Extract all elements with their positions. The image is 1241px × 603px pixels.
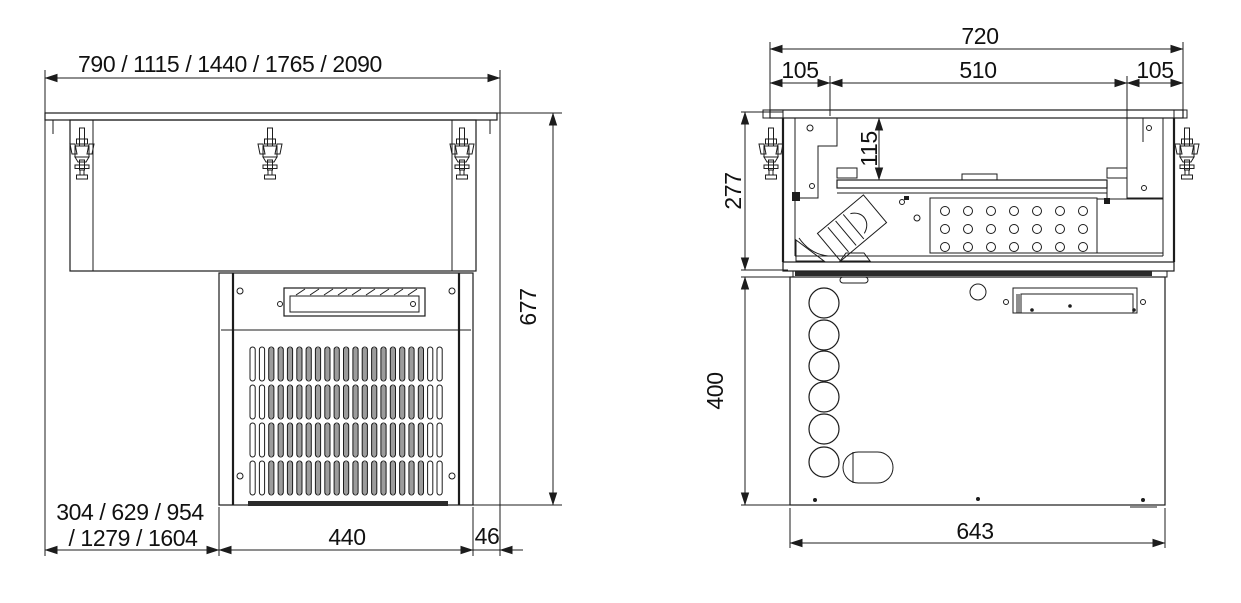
grille-slot [269, 423, 274, 457]
label-gap: 46 [475, 523, 500, 549]
screw-dot [1030, 308, 1034, 312]
access-panel-inner [1021, 294, 1133, 313]
grille-slot [428, 423, 433, 457]
grille-slot [372, 423, 377, 457]
grille-slot [315, 347, 320, 381]
top-lip-left [763, 110, 783, 118]
grille-slot [315, 423, 320, 457]
bracket-right-tab [1107, 168, 1127, 178]
grille-slot [381, 461, 386, 495]
grille-slot [418, 385, 423, 419]
grille-slot [287, 461, 292, 495]
grille-slot [353, 461, 358, 495]
grille-slot [334, 461, 339, 495]
dimension-lines [45, 42, 1183, 556]
screw-hole [1142, 186, 1147, 191]
screw-hole [914, 215, 920, 221]
screw-dot [1141, 498, 1145, 502]
grille-slot [409, 423, 414, 457]
grille-slot [278, 385, 283, 419]
grille-slot [325, 423, 330, 457]
grille-slot [372, 461, 377, 495]
rear-panel [1097, 199, 1163, 253]
grille-slot [334, 385, 339, 419]
grille-slot [372, 385, 377, 419]
vent-panel-hatch [296, 289, 417, 295]
drip-sump [796, 240, 824, 261]
grille-slot [437, 347, 442, 381]
grille-slot [269, 461, 274, 495]
plate-hole [1079, 243, 1088, 252]
plate-hole [964, 207, 973, 216]
grille-slot [353, 347, 358, 381]
grille-slot [287, 423, 292, 457]
screw-dot [1132, 308, 1136, 312]
plate-hole [941, 243, 950, 252]
plate-hole [1056, 207, 1065, 216]
grille-slot [409, 461, 414, 495]
cable-hole [809, 447, 839, 477]
side-view [759, 110, 1199, 507]
grille-slot [259, 385, 264, 419]
label-lower-height: 400 [702, 372, 728, 409]
screw-dot [976, 497, 980, 501]
screw-hole [1147, 126, 1152, 131]
bracket-left-tab [837, 168, 857, 178]
plate-hole [987, 243, 996, 252]
screw-hole [449, 473, 455, 479]
screw-hole [900, 200, 905, 205]
hatch-tick [366, 289, 375, 295]
screw-hole [807, 125, 813, 131]
cable-hole [809, 414, 839, 444]
grille-slot [400, 461, 405, 495]
grille-slot [344, 461, 349, 495]
shelf-handle [962, 174, 997, 180]
hatch-tick [394, 289, 403, 295]
tub-base [783, 262, 1174, 271]
label-offset-line2: / 1279 / 1604 [68, 525, 198, 551]
wall-clip [792, 192, 800, 201]
countertop [45, 113, 497, 120]
plate-hole [1033, 225, 1042, 234]
mounting-clamp [70, 128, 94, 179]
grille-slot [381, 347, 386, 381]
vent-panel-inner [290, 296, 419, 312]
grille-slot [344, 347, 349, 381]
plate-hole [964, 225, 973, 234]
grille-slot [278, 347, 283, 381]
grille-slot [428, 461, 433, 495]
hatch-tick [324, 289, 333, 295]
label-width-variants: 790 / 1115 / 1440 / 1765 / 2090 [78, 51, 382, 77]
grille-slot [362, 385, 367, 419]
label-well-depth: 510 [959, 57, 996, 83]
label-height: 677 [515, 288, 541, 325]
grille-slot [306, 423, 311, 457]
false-bottom-shelf [837, 180, 1107, 188]
grille-slot [409, 347, 414, 381]
cable-hole [809, 351, 839, 381]
mounting-clamp [258, 128, 282, 179]
grille-slot [390, 423, 395, 457]
cable-hole [809, 382, 839, 412]
hatch-tick [380, 289, 389, 295]
screw-hole [411, 302, 416, 307]
drain-bump [840, 277, 868, 283]
label-inner-height: 115 [856, 131, 882, 166]
grille-slot [250, 423, 255, 457]
hatch-tick [296, 289, 305, 295]
grille-slot [325, 461, 330, 495]
bracket-left [795, 118, 837, 198]
screw-hole [237, 473, 243, 479]
label-upper-height: 277 [720, 172, 746, 209]
grille-slot [269, 347, 274, 381]
grille-slot [306, 347, 311, 381]
grille-slot [315, 385, 320, 419]
grille-slot [297, 347, 302, 381]
grille-slot [437, 461, 442, 495]
mounting-clamp [1175, 128, 1199, 179]
grille-slot [287, 385, 292, 419]
hatch-tick [310, 289, 319, 295]
grille-slot [362, 461, 367, 495]
label-offset-line1: 304 / 629 / 954 [56, 499, 204, 525]
round-hole [970, 284, 986, 300]
grille-slot [372, 347, 377, 381]
grille-slot [306, 461, 311, 495]
grille-slot [259, 347, 264, 381]
hatch-tick [408, 289, 417, 295]
plate-hole [941, 225, 950, 234]
grille-slot [287, 347, 292, 381]
plate-hole [1079, 225, 1088, 234]
label-total-depth: 720 [961, 23, 998, 49]
cable-hole [809, 320, 839, 350]
grille-slot [344, 385, 349, 419]
cable-hole-column [809, 288, 839, 477]
base-strip [248, 501, 448, 506]
grille-slot [306, 385, 311, 419]
label-bottom-depth: 643 [956, 518, 993, 544]
grille-slot [278, 423, 283, 457]
plate-hole [1079, 207, 1088, 216]
grille-slot [400, 347, 405, 381]
grille-slot [344, 423, 349, 457]
grille-slot [409, 385, 414, 419]
technical-drawing: 790 / 1115 / 1440 / 1765 / 2090 304 / 62… [0, 0, 1241, 603]
grille-slot [362, 347, 367, 381]
plate-hole [1056, 225, 1065, 234]
cable-hole [809, 288, 839, 318]
grille-slot [418, 347, 423, 381]
plate-hole [1010, 225, 1019, 234]
screw-hole [237, 288, 243, 294]
plate-hole [1033, 207, 1042, 216]
plate-hole [1010, 207, 1019, 216]
label-unit-width: 440 [328, 524, 365, 550]
hatch-tick [352, 289, 361, 295]
top-lip-right [1174, 110, 1187, 118]
plate-hole [987, 207, 996, 216]
dimension-labels: 790 / 1115 / 1440 / 1765 / 2090 304 / 62… [56, 23, 1173, 551]
grille-slot [362, 423, 367, 457]
mounting-clamp [759, 128, 783, 179]
shelf-step [1107, 188, 1127, 199]
grille-slot [297, 461, 302, 495]
screw-hole [810, 184, 815, 189]
grille-slot [250, 347, 255, 381]
grille-slot [250, 385, 255, 419]
top-flange [770, 110, 1183, 118]
hatch-tick [338, 289, 347, 295]
grille-slot [297, 423, 302, 457]
grille-slot [428, 347, 433, 381]
grille-slot [390, 461, 395, 495]
screw-hole [449, 288, 455, 294]
grille-slot [297, 385, 302, 419]
grille-slot [353, 385, 358, 419]
screw-dot [1068, 304, 1072, 308]
obround-cutout [843, 452, 893, 483]
grille-slot [259, 461, 264, 495]
grille-slot [334, 423, 339, 457]
screw-hole [1141, 300, 1146, 305]
grille-slot [259, 423, 264, 457]
grille-slot [278, 461, 283, 495]
grille-slot [418, 423, 423, 457]
plate-hole [1033, 243, 1042, 252]
grille-slot [353, 423, 358, 457]
grille-slot [418, 461, 423, 495]
grille-slot [325, 347, 330, 381]
grille-slot [400, 423, 405, 457]
grille-slot [269, 385, 274, 419]
plate-hole [1056, 243, 1065, 252]
grille-slot [315, 461, 320, 495]
ventilation-grille [250, 347, 442, 495]
sensor-block [904, 196, 909, 200]
mounting-clamp [450, 128, 474, 179]
grille-slot [325, 385, 330, 419]
grille-slot [381, 385, 386, 419]
front-view [45, 113, 497, 506]
grille-slot [437, 385, 442, 419]
grille-slot [381, 423, 386, 457]
plate-hole [964, 243, 973, 252]
perforated-plate-holes [941, 207, 1088, 252]
grille-slot [437, 423, 442, 457]
lower-housing [790, 277, 1165, 505]
plate-hole [1010, 243, 1019, 252]
label-front-margin: 105 [781, 57, 818, 83]
screw-hole [278, 302, 283, 307]
label-back-margin: 105 [1136, 57, 1173, 83]
screw-dot [813, 498, 817, 502]
technical-drawing-page: 790 / 1115 / 1440 / 1765 / 2090 304 / 62… [0, 0, 1241, 603]
grille-slot [390, 347, 395, 381]
plate-hole [987, 225, 996, 234]
grille-slot [334, 347, 339, 381]
grille-slot [250, 461, 255, 495]
base-gasket [795, 271, 1152, 276]
fan-foot [840, 253, 870, 261]
screw-hole [1004, 300, 1009, 305]
grille-slot [400, 385, 405, 419]
grille-slot [390, 385, 395, 419]
grille-slot [428, 385, 433, 419]
fan-assembly [817, 195, 886, 261]
plate-hole [941, 207, 950, 216]
